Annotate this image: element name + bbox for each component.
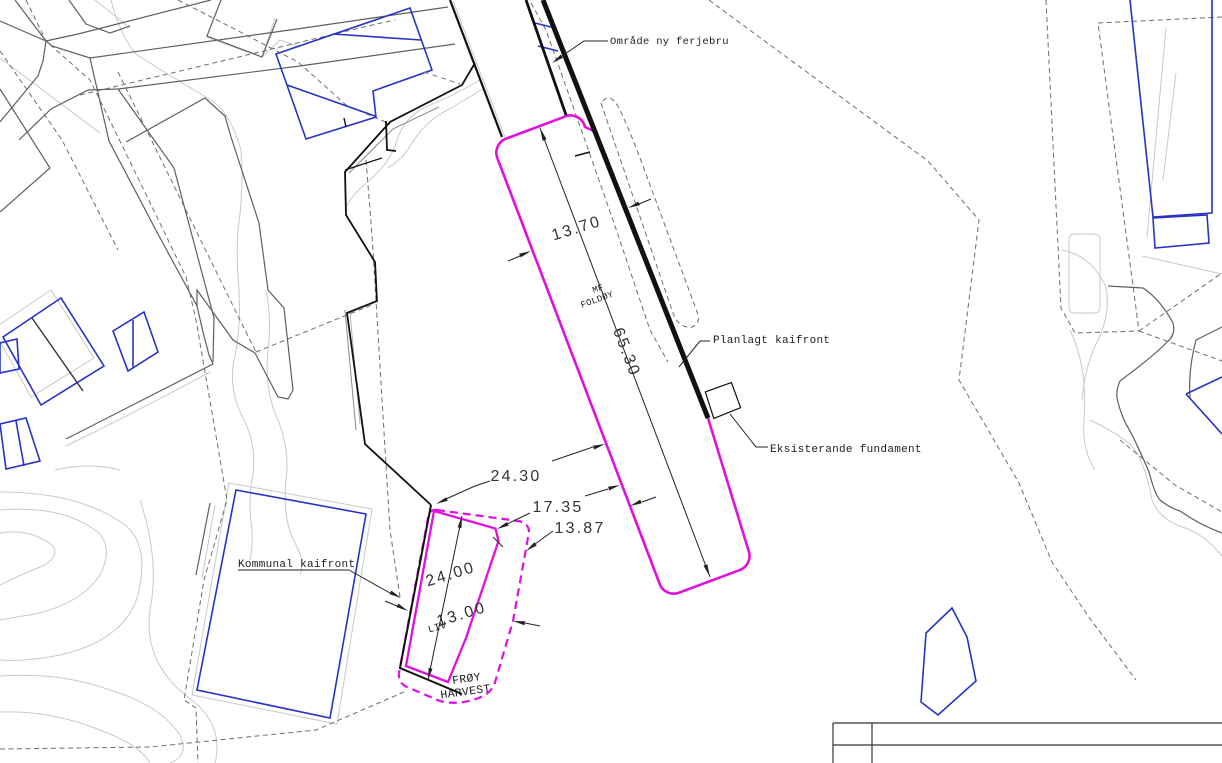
svg-text:Eksisterande fundament: Eksisterande fundament: [770, 444, 922, 456]
svg-text:13.87: 13.87: [554, 520, 605, 537]
svg-text:Planlagt kaifront: Planlagt kaifront: [713, 335, 830, 347]
svg-text:Kommunal kaifront: Kommunal kaifront: [238, 559, 355, 571]
svg-text:24.30: 24.30: [490, 468, 541, 485]
svg-text:Område ny ferjebru: Område ny ferjebru: [610, 35, 729, 48]
svg-text:17.35: 17.35: [532, 499, 583, 516]
